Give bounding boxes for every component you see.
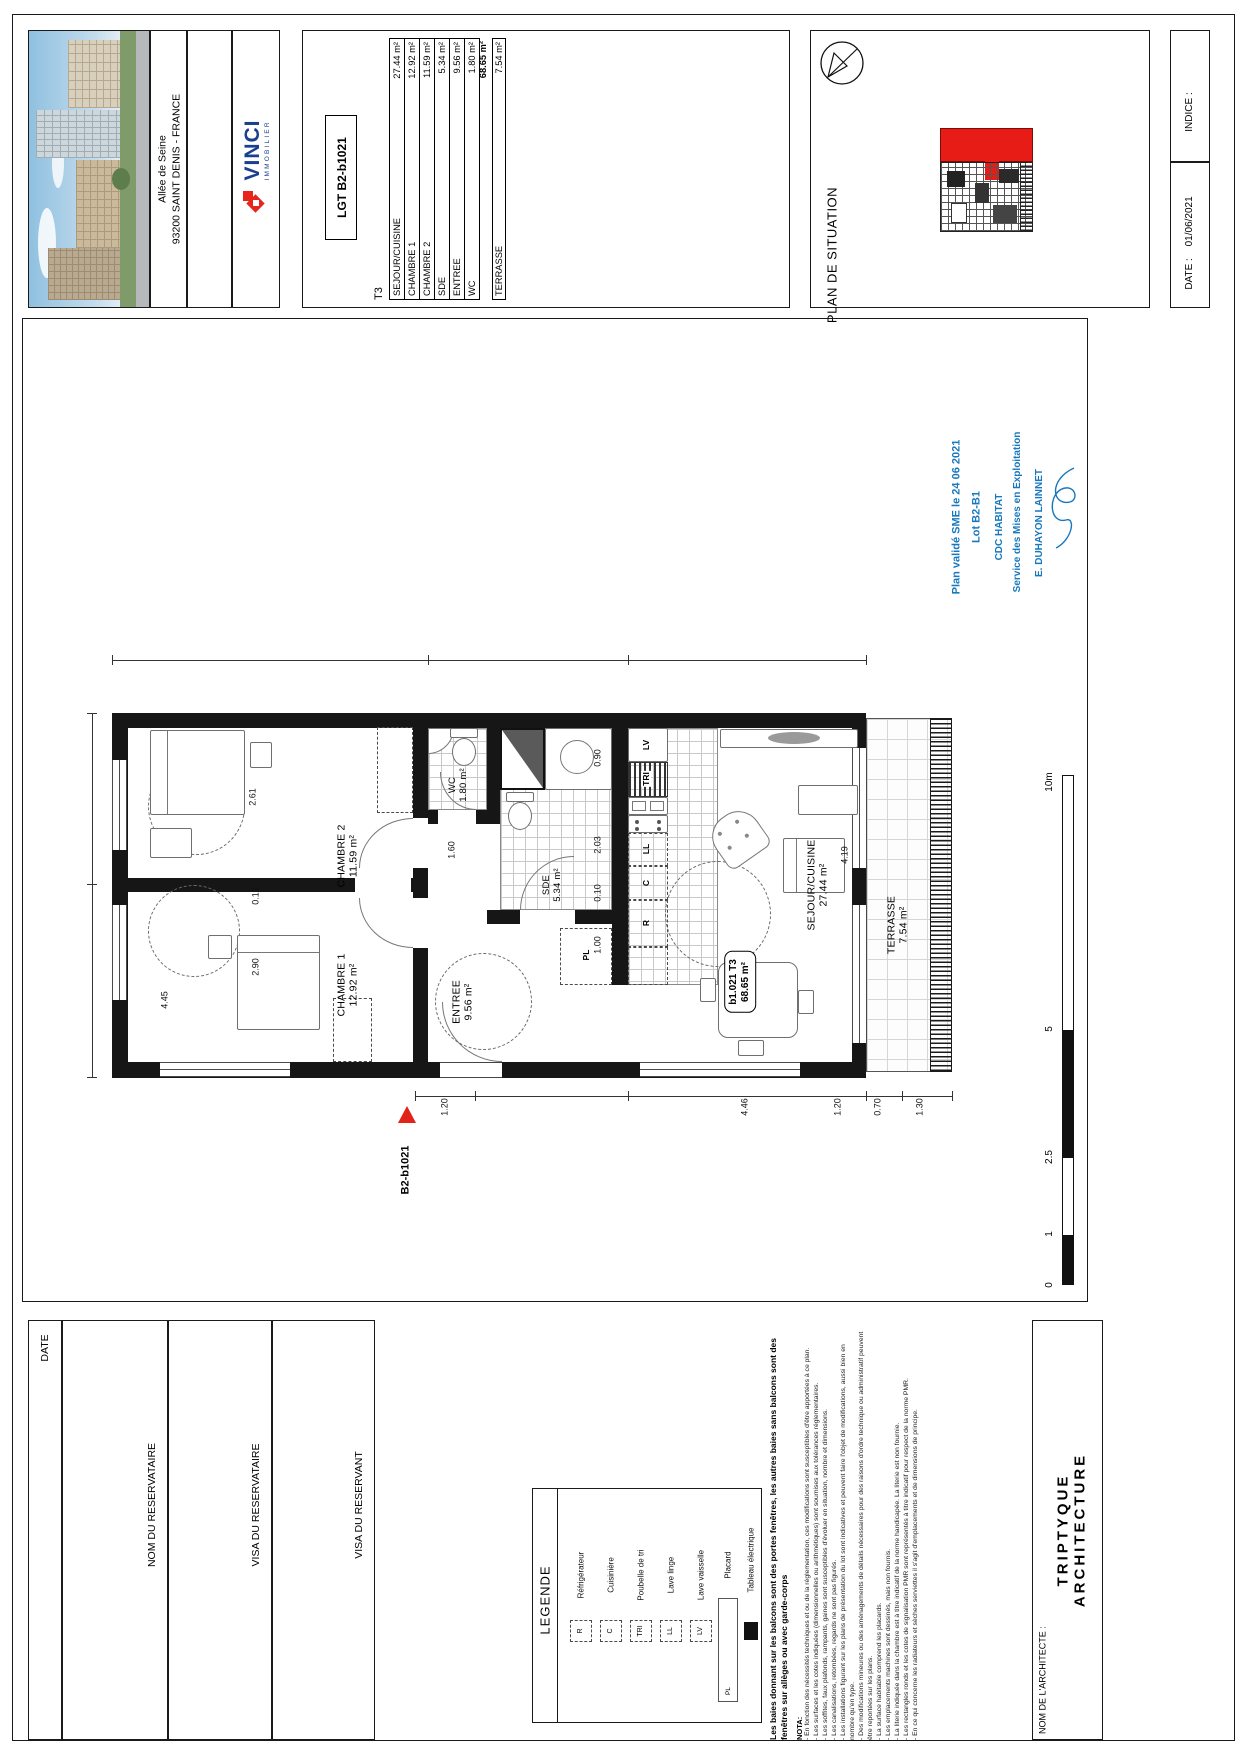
- placard-legend-icon: PL: [718, 1598, 738, 1702]
- code-pl: PL: [581, 950, 591, 961]
- row-label: CHAMBRE 2: [422, 242, 432, 299]
- room-label-sde: SDE 5.34 m²: [541, 868, 563, 902]
- dim-label: 2.03: [593, 836, 604, 854]
- terrace-row: TERRASSE 7.54 m²: [492, 38, 506, 300]
- row-value: 12.92 m²: [407, 39, 417, 79]
- scale-bar: [1062, 775, 1074, 1285]
- row-value: 7.54 m²: [494, 39, 504, 74]
- dim-tick: [415, 1091, 416, 1101]
- dim-tick: [628, 655, 629, 665]
- dim-label: 0.10: [593, 884, 604, 902]
- table-row: ENTREE9.56 m²: [450, 39, 465, 299]
- address-line1: Allée de Seine: [156, 30, 168, 308]
- dim-label: 4.19: [840, 846, 851, 864]
- site-plan-highlight: [940, 128, 1033, 162]
- dim-tick: [87, 1077, 97, 1078]
- situation-title: PLAN DE SITUATION: [824, 187, 839, 323]
- window: [640, 1062, 800, 1077]
- dim-label: 4.46: [740, 1098, 751, 1116]
- architect-name: TRIPTYQUE ARCHITECTURE: [1054, 1320, 1088, 1740]
- room-name: CHAMBRE 1: [336, 953, 348, 1016]
- lot-code: LGT B2-b1021: [335, 137, 349, 218]
- box-label-date: DATE: [39, 1334, 51, 1361]
- lot-code-box: LGT B2-b1021: [325, 115, 357, 240]
- wall-wc: [487, 713, 500, 824]
- row-label: ENTREE: [452, 258, 462, 299]
- row-label: SDE: [437, 277, 447, 299]
- architect-box: NOM DE L'ARCHITECTE : TRIPTYQUE ARCHITEC…: [1032, 1320, 1103, 1740]
- dim-label: 0.70: [873, 1098, 884, 1116]
- room-name: TERRASSE: [886, 896, 898, 954]
- table-row: SDE5.34 m²: [435, 39, 450, 299]
- dim-tick: [866, 1091, 867, 1101]
- room-name: SDE: [541, 868, 552, 902]
- dim-line-top: [112, 660, 866, 661]
- nota-item: - En ce qui concerne les radiateurs et s…: [912, 1322, 921, 1740]
- window: [112, 760, 127, 850]
- nota-item: - Les emplacements machines sont dessiné…: [885, 1322, 894, 1740]
- row-value: 5.34 m²: [437, 39, 447, 74]
- empty-title-box: [187, 30, 232, 308]
- electrical-panel-legend-icon: [744, 1622, 758, 1640]
- areas-table: SEJOUR/CUISINE27.44 m² CHAMBRE 112.92 m²…: [389, 38, 480, 300]
- scale-seg: [1063, 776, 1073, 1030]
- room-name: CHAMBRE 2: [336, 824, 348, 887]
- toilet-bowl: [508, 802, 532, 830]
- dim-label: 1.20: [833, 1098, 844, 1116]
- table-row: CHAMBRE 211.59 m²: [420, 39, 435, 299]
- unit-type: T3: [373, 287, 385, 300]
- table-row: CHAMBRE 112.92 m²: [405, 39, 420, 299]
- dim-label: 4.45: [160, 991, 171, 1009]
- window: [112, 905, 127, 1000]
- nota-item: - La literie indiquée dans la chambre es…: [894, 1322, 903, 1740]
- brand-box: VINCI IMMOBILIER: [232, 30, 280, 308]
- door-gap: [413, 818, 428, 868]
- dim-label: 1.30: [915, 1098, 926, 1116]
- address-line2: 93200 SAINT DENIS - FRANCE: [170, 30, 182, 308]
- kitchen-slot: [628, 947, 668, 985]
- room-area: 9.56 m²: [463, 980, 475, 1024]
- areas-title-block: LGT B2-b1021 T3 SEJOUR/CUISINE27.44 m² C…: [302, 30, 790, 308]
- bed-chambre2: [150, 730, 245, 815]
- legend-label: Tableau électrique: [746, 1528, 755, 1593]
- dim-tick: [952, 1091, 953, 1101]
- row-label: CHAMBRE 1: [407, 242, 417, 299]
- nota-title: NOTA:: [795, 1322, 804, 1740]
- entrance-gap: [440, 1062, 502, 1078]
- date-signature-box: [28, 1320, 62, 1740]
- door-gap: [413, 898, 428, 948]
- dim-label: 1.60: [447, 841, 458, 859]
- total-area: 68.65 m²: [478, 38, 488, 78]
- wall-corridor: [413, 713, 428, 1078]
- legend-code: C: [607, 1628, 615, 1633]
- bed-chambre1: [237, 935, 320, 1030]
- dim-tick: [87, 713, 97, 714]
- brand-division: IMMOBILIER: [264, 120, 271, 180]
- nota-item: - La surface habitable comprend les plac…: [876, 1322, 885, 1740]
- door-gap: [520, 910, 575, 924]
- stove-unit: [628, 815, 668, 833]
- signature: [1046, 462, 1080, 554]
- toilet-bowl: [452, 738, 476, 766]
- table-row: SEJOUR/CUISINE27.44 m²: [390, 39, 405, 299]
- sideboard: [798, 785, 858, 815]
- placard-chambre2: [377, 727, 413, 813]
- indice-label: INDICE :: [1184, 92, 1196, 131]
- architect-label: NOM DE L'ARCHITECTE :: [1037, 1626, 1047, 1734]
- scale-seg: [1063, 1030, 1073, 1158]
- dim-line-left: [92, 713, 93, 1078]
- nota-item: - Les installations figurant sur les pla…: [840, 1322, 858, 1740]
- nightstand: [250, 742, 272, 768]
- window: [160, 1062, 290, 1077]
- room-label-sejour: SEJOUR/CUISINE 27.44 m²: [806, 840, 831, 931]
- pmr-circle: [665, 861, 771, 967]
- row-value: 27.44 m²: [392, 39, 402, 79]
- validation-line-5: E. DUHAYON LAINNET: [1034, 469, 1046, 577]
- door-gap: [355, 878, 411, 892]
- code-c: C: [641, 880, 651, 886]
- room-label-wc: WC 1.80 m²: [447, 768, 469, 802]
- box-label-visa-reservant: VISA DU RESERVANT: [353, 1451, 365, 1559]
- room-label-chambre1: CHAMBRE 1 12.92 m²: [336, 953, 361, 1016]
- tv: [768, 732, 820, 744]
- row-label: TERRASSE: [494, 246, 504, 299]
- architect-name-line1: TRIPTYQUE: [1054, 1320, 1071, 1740]
- site-plan-hatch: [1020, 162, 1033, 232]
- chair: [700, 978, 716, 1002]
- nota-intro: Les baies donnant sur les balcons sont d…: [768, 1330, 791, 1740]
- dim-label: 1.20: [440, 1098, 451, 1116]
- room-name: WC: [447, 768, 458, 802]
- chair: [738, 1040, 764, 1056]
- scale-label: 10m: [1044, 772, 1056, 791]
- box-label-visa-reservataire: VISA DU RESERVATAIRE: [250, 1444, 262, 1567]
- address-box: Allée de Seine 93200 SAINT DENIS - FRANC…: [150, 30, 187, 308]
- legend-divider: [557, 1488, 558, 1723]
- pmr-circle: [435, 953, 532, 1050]
- room-label-chambre2: CHAMBRE 2 11.59 m²: [336, 824, 361, 887]
- legend-label: Placard: [723, 1551, 732, 1578]
- room-name: SEJOUR/CUISINE: [806, 840, 818, 931]
- nota-item: - Les surfaces et les cotes indiquées (d…: [813, 1322, 822, 1740]
- legend-label: Poubelle de tri: [636, 1549, 645, 1600]
- toilet-tank: [506, 792, 534, 802]
- toilet-tank: [450, 728, 478, 738]
- unit-marker-icon: [398, 1106, 416, 1123]
- room-area: 5.34 m²: [552, 868, 563, 902]
- north-symbol-icon: [817, 38, 867, 88]
- legend-code: R: [577, 1628, 585, 1633]
- room-name: ENTREE: [451, 980, 463, 1024]
- legend-code: LV: [697, 1627, 705, 1635]
- scale-label: 5: [1044, 1026, 1056, 1032]
- architect-name-line2: ARCHITECTURE: [1071, 1320, 1088, 1740]
- washbasin: [560, 740, 594, 774]
- nota-item: - Les rectangles ronds et les cotes de s…: [903, 1322, 912, 1740]
- terrace-hatch: [930, 718, 952, 1072]
- room-label-entree: ENTREE 9.56 m²: [451, 980, 476, 1024]
- street: [136, 30, 150, 308]
- validation-line-3: CDC HABITAT: [994, 494, 1006, 561]
- nota-item: - En fonction des nécessités techniques …: [804, 1322, 813, 1740]
- nightstand: [208, 935, 232, 959]
- nota-block: Les baies donnant sur les balcons sont d…: [768, 1322, 1008, 1740]
- desk-chambre2: [150, 828, 192, 858]
- scale-label: 0: [1044, 1282, 1056, 1288]
- pmr-circle: [148, 885, 240, 977]
- validation-line-2: Lot B2-B1: [971, 491, 984, 543]
- vinci-logo-mark: [242, 189, 270, 219]
- unit-tag-line2: 68.65 m²: [740, 959, 752, 1005]
- date-value: 01/06/2021: [1184, 196, 1195, 246]
- legend-label: Lave linge: [666, 1557, 675, 1593]
- code-ll: LL: [641, 844, 651, 854]
- unit-marker-label: B2-b1021: [400, 1146, 413, 1195]
- scale-seg: [1063, 1158, 1073, 1235]
- code-r: R: [641, 920, 651, 926]
- dim-label: 0.90: [593, 749, 604, 767]
- row-value: 11.59 m²: [422, 39, 432, 78]
- code-lv: LV: [641, 740, 651, 750]
- legend-code: PL: [725, 1687, 733, 1695]
- room-label-terrasse: TERRASSE 7.54 m²: [886, 896, 911, 954]
- date-label: DATE :: [1184, 258, 1195, 289]
- window-bay: [852, 905, 867, 1043]
- project-photo: [28, 30, 150, 308]
- unit-tag: b1.021 T3 68.65 m²: [724, 951, 756, 1013]
- dim-label: 2.90: [251, 958, 262, 976]
- dim-label: 1.00: [593, 936, 604, 954]
- wall-kitchen: [612, 713, 628, 985]
- sink-unit: [628, 797, 668, 815]
- dim-tick: [628, 1091, 629, 1101]
- room-area: 1.80 m²: [458, 768, 469, 802]
- door-gap: [438, 810, 476, 824]
- dim-line-bottom: [415, 1096, 952, 1097]
- dim-tick: [475, 1091, 476, 1101]
- legend-code: TRI: [637, 1625, 645, 1636]
- dim-label: 2.61: [248, 788, 259, 806]
- scale-label: 1: [1044, 1231, 1056, 1237]
- shower: [500, 728, 545, 790]
- room-area: 11.59 m²: [348, 824, 360, 887]
- nota-item: - Les soffites, faux plafonds, rampants,…: [822, 1322, 831, 1740]
- unit-tag-line1: b1.021 T3: [728, 959, 740, 1005]
- legend-title: LEGENDE: [537, 1565, 552, 1634]
- row-value: 9.56 m²: [452, 39, 462, 74]
- total-row: 68.65 m²: [476, 38, 490, 300]
- dim-tick: [428, 655, 429, 665]
- legend-label: Cuisinière: [606, 1557, 615, 1593]
- dim-tick: [866, 655, 867, 665]
- box-label-nom-reservataire: NOM DU RESERVATAIRE: [146, 1443, 158, 1567]
- dim-label: 0.10: [251, 887, 262, 905]
- nota-item: - Les canalisations, retombées, regards …: [831, 1322, 840, 1740]
- brand-name: VINCI: [242, 120, 263, 181]
- chair: [798, 990, 814, 1014]
- scale-label: 2.5: [1044, 1150, 1056, 1164]
- dim-tick: [87, 884, 97, 885]
- room-area: 27.44 m²: [818, 840, 830, 931]
- nota-item: - Des modifications mineures ou des amén…: [858, 1322, 876, 1740]
- validation-line-4: Service des Mises en Exploitation: [1012, 432, 1024, 593]
- room-area: 12.92 m²: [348, 953, 360, 1016]
- row-label: SEJOUR/CUISINE: [392, 218, 402, 299]
- tree: [112, 168, 130, 190]
- legend-label: Lave vaisselle: [696, 1550, 705, 1600]
- scale-seg: [1063, 1235, 1073, 1284]
- dim-tick: [112, 655, 113, 665]
- room-area: 7.54 m²: [898, 896, 910, 954]
- plan-sheet: Allée de Seine 93200 SAINT DENIS - FRANC…: [0, 0, 1241, 1755]
- date-value-line: DATE : 01/06/2021: [1184, 196, 1196, 289]
- validation-line-1: Plan validé SME le 24 06 2021: [951, 440, 964, 595]
- code-tri: TRI: [641, 771, 651, 787]
- dim-tick: [902, 1091, 903, 1101]
- legend-code: LL: [667, 1627, 675, 1635]
- legend-label: Réfrigérateur: [576, 1552, 585, 1599]
